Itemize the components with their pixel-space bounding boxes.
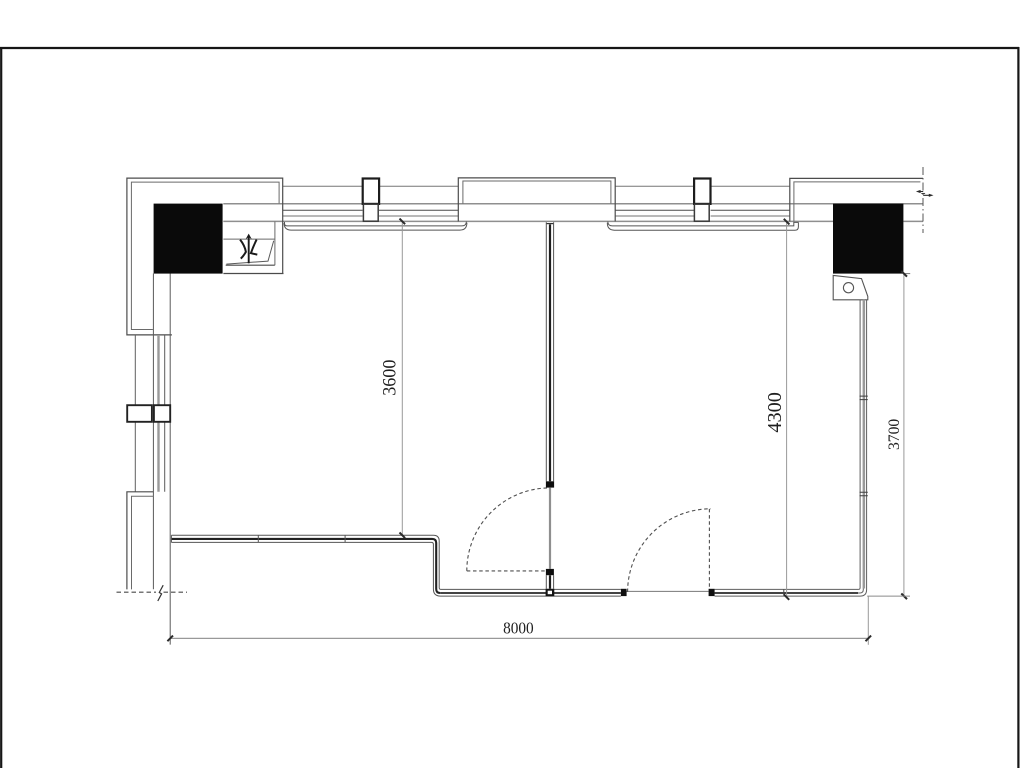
svg-text:4300: 4300 bbox=[765, 392, 786, 432]
svg-text:8000: 8000 bbox=[503, 619, 534, 638]
svg-text:3700: 3700 bbox=[885, 419, 903, 450]
svg-text:3600: 3600 bbox=[380, 360, 400, 396]
